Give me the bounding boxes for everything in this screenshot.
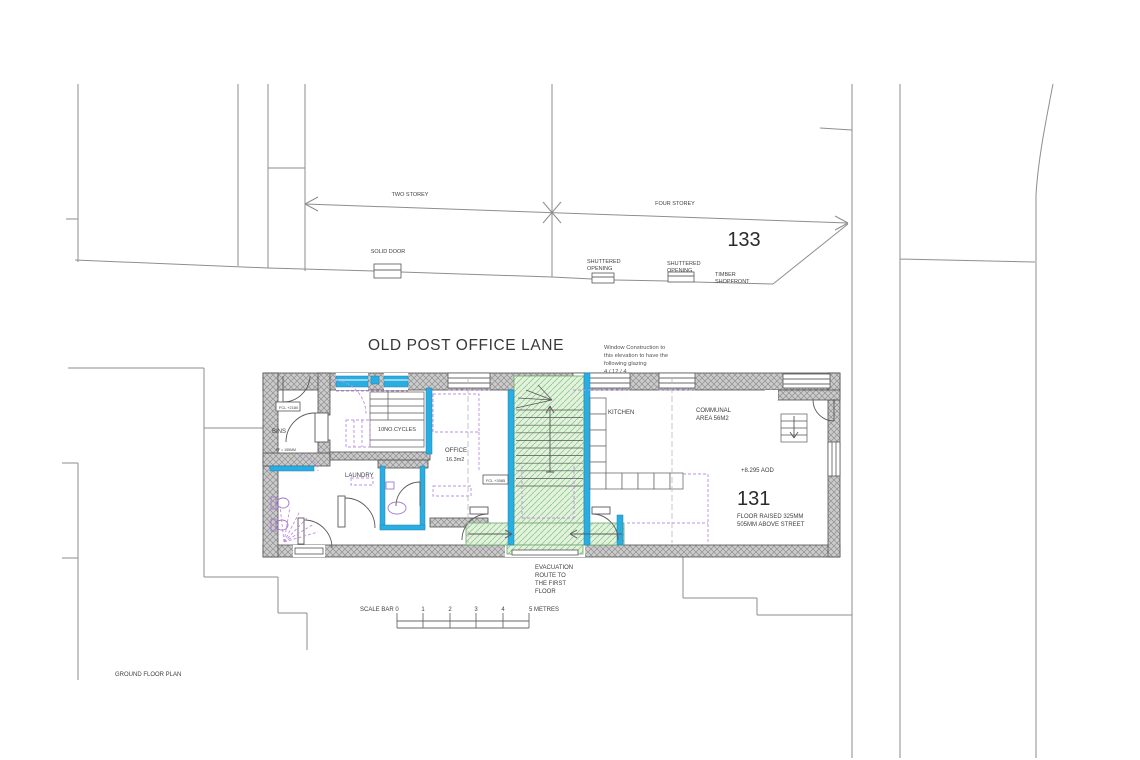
stair-fcl-label: FCL +3085: [486, 478, 505, 483]
scale-tick-2: 2: [448, 607, 452, 613]
building-number-133: 133: [727, 229, 760, 251]
svg-text:ROUTE TO: ROUTE TO: [535, 573, 566, 579]
svg-text:following glazing: following glazing: [604, 361, 647, 367]
window-c: [659, 373, 695, 388]
facade-133: [268, 224, 848, 284]
scale-bar: SCALE BAR 0 1 2 3 4 5 METRES: [360, 607, 559, 628]
four-storey-label: FOUR STOREY: [655, 201, 695, 207]
svg-text:Window Construction to: Window Construction to: [604, 345, 665, 351]
communal-label-line1: COMMUNAL: [696, 408, 732, 414]
office-label: OFFICE: [445, 448, 467, 454]
svg-text:EVACUATION: EVACUATION: [535, 565, 573, 571]
window-a: [448, 373, 490, 388]
cycles-lockers: [346, 420, 370, 447]
shuttered-opening-1-label-line2: OPENING: [587, 266, 612, 272]
laundry-door: [338, 496, 375, 528]
solid-door: [374, 264, 401, 278]
drawing-title: GROUND FLOOR PLAN: [115, 672, 181, 678]
svg-text:FLOOR: FLOOR: [535, 589, 556, 595]
laundry-appliance: [351, 478, 373, 485]
svg-text:THE FIRST: THE FIRST: [535, 581, 566, 587]
bins-cycles-door: [286, 413, 328, 442]
shuttered-opening-1: [592, 273, 614, 283]
bins-label: BINS: [272, 429, 286, 435]
svg-text:this elevation to have the: this elevation to have the: [604, 353, 668, 359]
floor-raised-line1: FLOOR RAISED 325MM: [737, 514, 803, 520]
office-cabinet: [433, 486, 471, 496]
solid-door-label: SOLID DOOR: [371, 249, 406, 255]
timber-shopfront-label-line1: TIMBER: [715, 272, 736, 278]
cycle-rack: [370, 392, 424, 447]
dimension-line: [305, 197, 848, 230]
bins-fcl-label: FCL +2180: [279, 405, 299, 410]
cycles-label: 10NO.CYCLES: [378, 427, 416, 433]
side-window: [828, 442, 840, 476]
evacuation-note: EVACUATION ROUTE TO THE FIRST FLOOR: [535, 565, 573, 595]
scale-bar-label: SCALE BAR: [360, 607, 394, 613]
shuttered-opening-1-label-line1: SHUTTERED: [587, 259, 621, 265]
floor-plan-page: TWO STOREY FOUR STOREY 133 SOLID DOOR SH…: [0, 0, 1140, 760]
aod-label: +8.295 AOD: [741, 468, 775, 474]
timber-shopfront-label-line2: SHOPFRONT: [715, 279, 750, 285]
rear-staircase: [781, 414, 807, 442]
bins-ff-label: FF = 155MM: [276, 448, 296, 452]
new-window-1: [336, 376, 368, 387]
shuttered-opening-2-label-line1: SHUTTERED: [667, 261, 701, 267]
floor-plan-drawing: TWO STOREY FOUR STOREY 133 SOLID DOOR SH…: [0, 0, 1140, 760]
scale-tick-3: 3: [474, 607, 478, 613]
kitchen-label: KITCHEN: [608, 410, 634, 416]
communal-label-line2: AREA 56M2: [696, 416, 729, 422]
shuttered-opening-2-label-line2: OPENING: [667, 268, 692, 274]
laundry-label: LAUNDRY: [345, 473, 374, 479]
new-window-2: [384, 376, 408, 387]
two-storey-label: TWO STOREY: [392, 192, 429, 198]
scale-tick-0: 0: [395, 607, 399, 613]
kitchen-units: [590, 398, 683, 489]
new-window-mullion: [371, 376, 379, 384]
scale-end-label: 5 METRES: [529, 607, 559, 613]
building-131: FCL +2180 BINS FF = 155MM 10NO.CYCLES LA…: [263, 373, 840, 557]
fixtures-and-furniture: [271, 380, 708, 543]
office-area-label: 16.3m2: [446, 457, 464, 463]
scale-tick-1: 1: [421, 607, 425, 613]
shopfront-window: [783, 374, 830, 388]
window-glazing-note: Window Construction to this elevation to…: [604, 345, 668, 375]
scale-tick-4: 4: [501, 607, 505, 613]
unit-number-131: 131: [737, 488, 770, 510]
street-name-title: OLD POST OFFICE LANE: [368, 337, 564, 354]
office-desk: [433, 394, 479, 432]
wc-mid-fixtures: [386, 482, 406, 514]
floor-raised-line2: 505MM ABOVE STREET: [737, 522, 805, 528]
